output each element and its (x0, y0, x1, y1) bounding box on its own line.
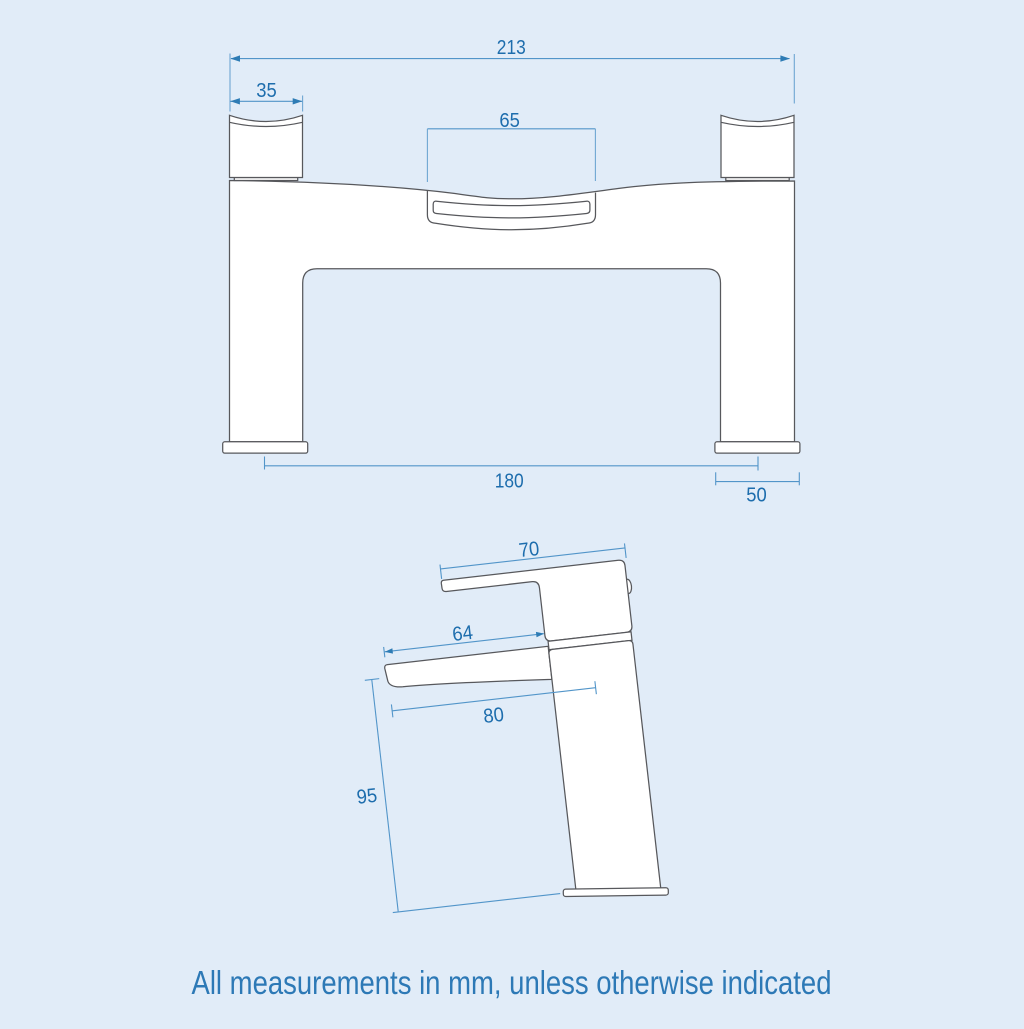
svg-text:All measurements in mm, unless: All measurements in mm, unless otherwise… (192, 964, 832, 1001)
svg-text:70: 70 (518, 538, 541, 562)
svg-text:213: 213 (497, 37, 526, 59)
svg-text:65: 65 (499, 110, 520, 132)
svg-text:35: 35 (256, 80, 277, 102)
svg-text:50: 50 (746, 484, 767, 506)
svg-text:180: 180 (495, 470, 524, 492)
svg-text:64: 64 (451, 622, 474, 646)
svg-text:80: 80 (482, 704, 505, 728)
svg-text:95: 95 (356, 785, 379, 809)
